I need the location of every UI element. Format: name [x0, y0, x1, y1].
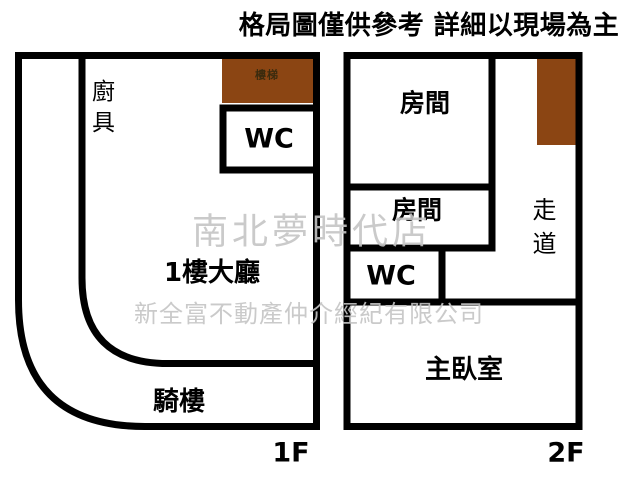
- room-label-wc-2f: WC: [366, 260, 416, 291]
- room-label-corridor: 走道: [530, 197, 554, 265]
- watermark-company-name: 新全富不動產仲介經紀有限公司: [134, 301, 484, 329]
- room-label-hall: 1樓大廳: [164, 259, 260, 289]
- floor2-caption: 2F: [547, 437, 584, 468]
- floor2-stairs-box: [537, 59, 576, 145]
- room-label-kitchen: 廚具: [89, 79, 112, 141]
- watermark-store-name: 南北夢時代店: [192, 211, 432, 252]
- floor1-caption: 1F: [272, 437, 309, 468]
- disclaimer-text: 格局圖僅供參考 詳細以現場為主: [239, 12, 620, 42]
- room-label-stairs-1f: 樓梯: [255, 70, 279, 83]
- room-label-bedroom-1: 房間: [400, 90, 450, 119]
- room-label-master-bedroom: 主臥室: [425, 356, 503, 386]
- floorplan-image: 格局圖僅供參考 詳細以現場為主 廚具 樓梯 WC 1樓大廳 騎樓 1F 房間 房…: [0, 0, 621, 480]
- room-label-arcade: 騎樓: [153, 388, 205, 418]
- room-label-wc-1f: WC: [244, 123, 294, 154]
